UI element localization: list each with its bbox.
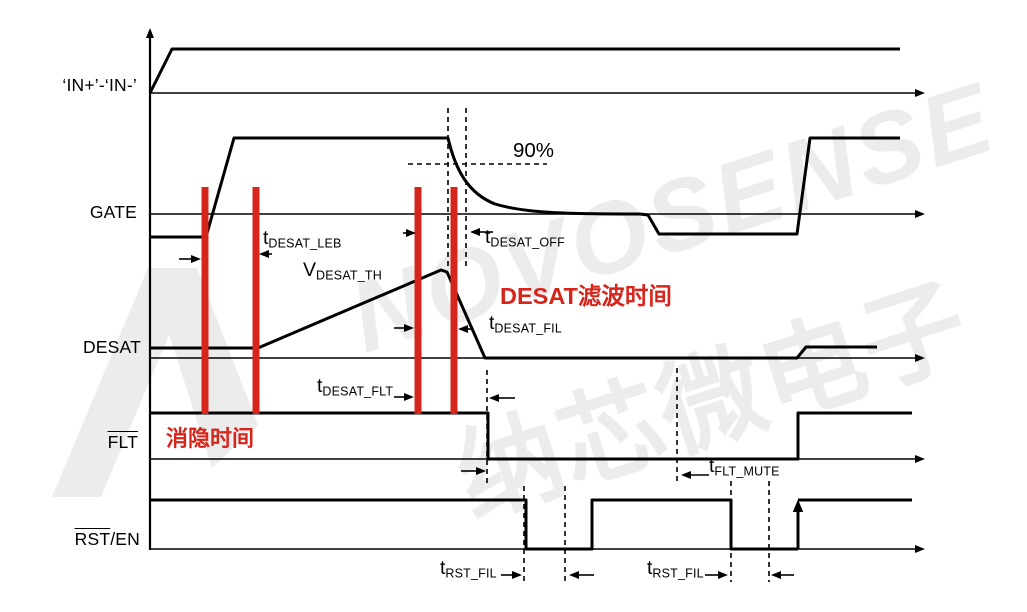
label-t-rst-fil-1: tRST_FIL — [440, 559, 497, 580]
label-t-desat-leb: tDESAT_LEB — [263, 229, 342, 250]
timing-diagram-page: NOVOSENSE 纳芯微电子 — [0, 0, 1027, 612]
signal-label-gate: GATE — [37, 204, 137, 222]
signal-label-rst-en: RST/EN — [40, 531, 140, 549]
label-v-desat-th: VDESAT_TH — [303, 261, 382, 282]
label-t-desat-fil: tDESAT_FIL — [489, 314, 562, 335]
rst-waveform — [150, 500, 798, 549]
desat-filter-time-annotation: DESAT滤波时间 — [500, 285, 672, 309]
label-t-desat-off: tDESAT_OFF — [485, 228, 565, 249]
measure-arrows — [179, 232, 794, 575]
label-t-desat-flt: tDESAT_FLT — [317, 377, 393, 398]
signal-label-in: ‘IN+’-‘IN-’ — [27, 77, 137, 95]
ninety-percent-label: 90% — [513, 141, 554, 162]
label-t-rst-fil-2: tRST_FIL — [647, 559, 704, 580]
fault-marker-bar-4 — [451, 187, 458, 414]
signal-label-flt: FLT — [38, 434, 138, 452]
fault-marker-bar-2 — [253, 187, 260, 414]
fault-marker-bar-1 — [202, 187, 209, 414]
in-waveform — [150, 49, 900, 93]
label-t-flt-mute: tFLT_MUTE — [709, 457, 780, 478]
blanking-time-annotation: 消隐时间 — [166, 428, 254, 450]
dashed-guides — [408, 108, 769, 582]
fault-marker-bar-3 — [415, 187, 422, 414]
flt-waveform — [150, 413, 912, 459]
signal-label-desat: DESAT — [41, 339, 141, 357]
